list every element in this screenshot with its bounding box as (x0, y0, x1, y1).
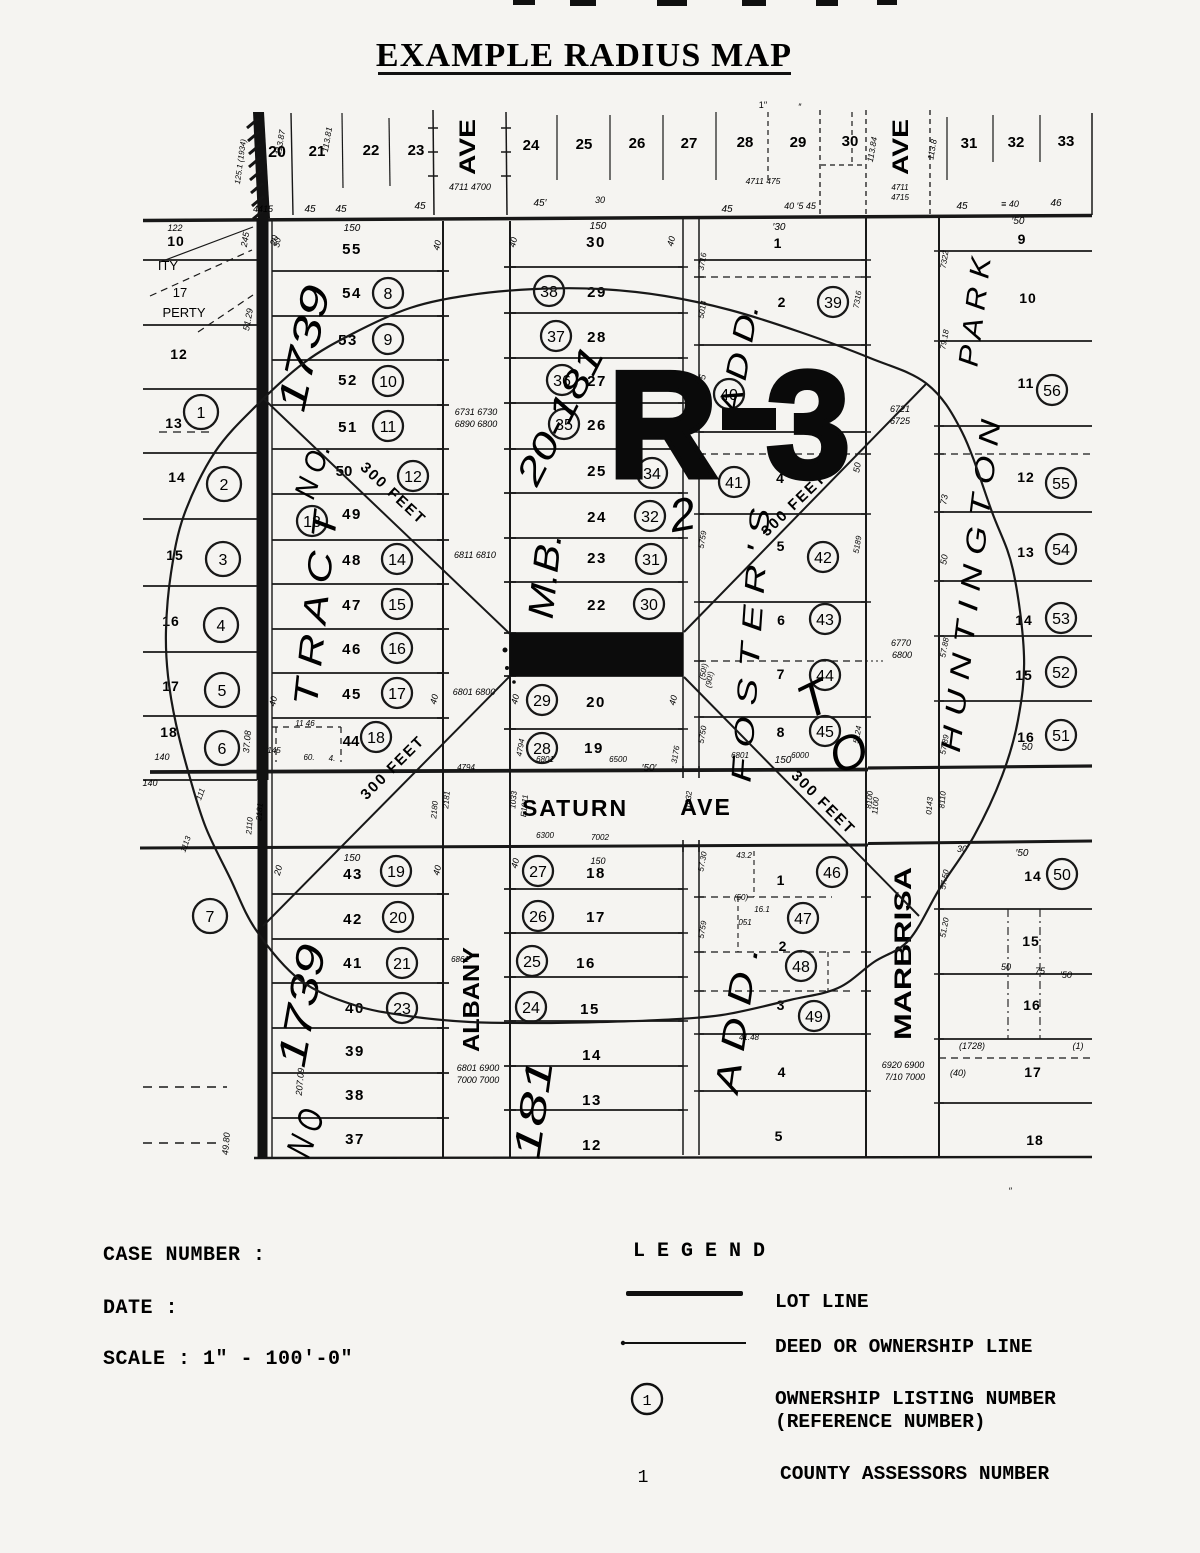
svg-text:50: 50 (336, 463, 353, 480)
svg-text:2: 2 (779, 938, 788, 954)
svg-text:4711 475: 4711 475 (746, 176, 781, 186)
svg-text:4711 4700: 4711 4700 (449, 182, 491, 192)
svg-text:45: 45 (414, 201, 426, 212)
svg-text:37.08: 37.08 (241, 730, 253, 753)
svg-text:150: 150 (590, 856, 605, 866)
svg-text:140: 140 (154, 752, 169, 762)
svg-text:29: 29 (587, 284, 607, 301)
svg-text:29: 29 (533, 693, 551, 710)
svg-text:7/10 7000: 7/10 7000 (885, 1072, 925, 1082)
svg-text:6770: 6770 (891, 638, 911, 648)
svg-text:21: 21 (393, 956, 411, 973)
svg-text:45: 45 (342, 686, 362, 703)
svg-text:EXAMPLE RADIUS MAP: EXAMPLE RADIUS MAP (376, 37, 792, 74)
svg-text:55: 55 (342, 241, 362, 258)
svg-text:41: 41 (343, 955, 363, 972)
svg-text:4415: 4415 (253, 204, 274, 214)
svg-text:45: 45 (721, 204, 733, 215)
svg-text:(1): (1) (1073, 1041, 1084, 1051)
svg-text:150: 150 (775, 755, 792, 766)
svg-text:6920 6900: 6920 6900 (882, 1060, 925, 1070)
svg-text:051: 051 (738, 918, 751, 927)
svg-text:13: 13 (165, 415, 183, 431)
svg-text:1: 1 (638, 1468, 649, 1488)
svg-text:11 46: 11 46 (295, 719, 315, 728)
svg-text:45: 45 (335, 204, 347, 215)
svg-text:6890 6800: 6890 6800 (455, 419, 498, 429)
svg-text:32: 32 (641, 509, 659, 526)
svg-text:12: 12 (1017, 469, 1035, 485)
svg-text:′′: ′′ (1008, 1186, 1012, 1196)
svg-text:14: 14 (168, 469, 186, 485)
svg-text:′30: ′30 (773, 222, 786, 233)
svg-text:50: 50 (1001, 962, 1011, 972)
svg-text:SATURN: SATURN (522, 795, 628, 821)
svg-text:1100: 1100 (870, 796, 881, 814)
svg-text:39: 39 (345, 1043, 365, 1060)
svg-text:6000: 6000 (791, 751, 809, 760)
svg-text:AVE: AVE (888, 119, 913, 175)
svg-text:150: 150 (590, 221, 607, 232)
svg-text:13: 13 (582, 1092, 602, 1109)
svg-text:16.1: 16.1 (754, 905, 770, 914)
svg-text:6731 6730: 6731 6730 (455, 407, 498, 417)
svg-text:12: 12 (582, 1137, 602, 1154)
svg-text:6801 6900: 6801 6900 (457, 1063, 500, 1073)
svg-text:26: 26 (629, 135, 646, 152)
svg-text:75: 75 (1035, 966, 1046, 976)
svg-text:25: 25 (523, 954, 541, 971)
svg-text:45: 45 (956, 201, 968, 212)
svg-text:9: 9 (384, 332, 393, 349)
svg-text:AVE: AVE (455, 119, 480, 175)
svg-text:28: 28 (737, 134, 754, 151)
svg-text:55: 55 (1052, 476, 1070, 493)
svg-text:39: 39 (824, 295, 842, 312)
svg-text:22: 22 (363, 142, 380, 159)
svg-text:6861: 6861 (451, 955, 469, 964)
svg-text:(40): (40) (950, 1068, 966, 1078)
svg-text:27: 27 (681, 135, 698, 152)
svg-text:46: 46 (342, 641, 362, 658)
svg-text:50: 50 (1053, 867, 1071, 884)
svg-text:5: 5 (777, 538, 786, 554)
svg-text:4711: 4711 (891, 183, 908, 192)
svg-text:26: 26 (529, 909, 547, 926)
svg-text:50: 50 (938, 554, 950, 566)
svg-text:37: 37 (547, 329, 565, 346)
svg-text:1: 1 (642, 1393, 651, 1410)
svg-text:44: 44 (343, 733, 360, 750)
svg-text:ITY: ITY (158, 258, 179, 273)
svg-text:17: 17 (388, 686, 406, 703)
svg-text:4: 4 (778, 1064, 787, 1080)
svg-text:42: 42 (343, 911, 363, 928)
svg-text:3: 3 (766, 340, 851, 510)
svg-text:22: 22 (587, 597, 607, 614)
svg-text:24: 24 (587, 509, 607, 526)
svg-text:52: 52 (1052, 665, 1070, 682)
svg-text:47: 47 (342, 597, 362, 614)
svg-text:SCALE : 1" - 100'-0": SCALE : 1" - 100'-0" (103, 1348, 353, 1371)
svg-text:6800: 6800 (892, 650, 912, 660)
svg-text:13: 13 (1017, 544, 1035, 560)
svg-text:48: 48 (342, 552, 362, 569)
svg-text:47: 47 (794, 911, 812, 928)
svg-text:3: 3 (777, 997, 786, 1013)
svg-text:6721: 6721 (890, 404, 910, 414)
svg-text:150: 150 (344, 853, 361, 864)
svg-text:33: 33 (1058, 133, 1075, 150)
svg-text:17: 17 (173, 285, 187, 300)
svg-text:30: 30 (595, 195, 605, 205)
svg-text:1: 1 (197, 405, 206, 422)
svg-text:L E G E N D: L E G E N D (633, 1240, 765, 1263)
svg-text:3: 3 (219, 552, 228, 569)
svg-text:′50: ′50 (1016, 848, 1029, 859)
svg-text:38: 38 (345, 1087, 365, 1104)
svg-text:2181: 2181 (441, 791, 452, 811)
svg-text:18: 18 (367, 730, 385, 747)
svg-text:7: 7 (206, 909, 215, 926)
svg-text:17: 17 (586, 909, 606, 926)
svg-text:41: 41 (725, 475, 743, 492)
svg-text:9: 9 (1018, 231, 1027, 247)
svg-text:31: 31 (961, 135, 978, 152)
svg-text:52: 52 (338, 372, 358, 389)
svg-text:15: 15 (388, 597, 406, 614)
svg-text:20: 20 (586, 694, 606, 711)
svg-text:10: 10 (167, 233, 185, 249)
svg-text:37: 37 (345, 1131, 365, 1148)
svg-text:50: 50 (851, 462, 863, 474)
svg-text:14: 14 (1015, 612, 1033, 628)
svg-text:DATE :: DATE : (103, 1297, 178, 1320)
svg-text:7000 7000: 7000 7000 (457, 1075, 500, 1085)
svg-text:11: 11 (1018, 375, 1035, 391)
svg-text:46: 46 (1050, 198, 1062, 209)
svg-text:23: 23 (408, 142, 425, 159)
svg-text:′50: ′50 (1060, 970, 1072, 980)
svg-text:18: 18 (586, 865, 606, 882)
svg-text:1: 1 (777, 872, 786, 888)
svg-text:(50): (50) (734, 893, 749, 902)
svg-text:2181: 2181 (254, 803, 265, 823)
svg-text:18: 18 (1026, 1132, 1044, 1148)
svg-text:17: 17 (1024, 1064, 1042, 1080)
svg-text:2: 2 (778, 294, 787, 310)
svg-text:25: 25 (587, 463, 607, 480)
svg-text:1′′: 1′′ (759, 100, 768, 110)
svg-text:LOT LINE: LOT LINE (775, 1291, 869, 1313)
svg-text:6: 6 (218, 741, 227, 758)
svg-text:2180: 2180 (429, 800, 440, 820)
svg-text:6801: 6801 (536, 755, 554, 764)
svg-text:15: 15 (580, 1001, 600, 1018)
svg-text:30: 30 (842, 133, 859, 150)
svg-text:56: 56 (1043, 383, 1061, 400)
svg-text:8: 8 (777, 724, 786, 740)
svg-text:16: 16 (162, 613, 180, 629)
svg-text:30: 30 (586, 234, 606, 251)
svg-text:4.: 4. (329, 754, 336, 763)
svg-text:45: 45 (304, 204, 316, 215)
svg-text:6300: 6300 (536, 831, 554, 840)
svg-text:(REFERENCE NUMBER): (REFERENCE NUMBER) (775, 1411, 986, 1433)
svg-text:19: 19 (584, 740, 604, 757)
svg-text:140: 140 (142, 778, 157, 788)
svg-text:43: 43 (816, 612, 834, 629)
svg-text:18: 18 (160, 724, 178, 740)
svg-text:30: 30 (640, 597, 658, 614)
svg-text:38: 38 (540, 284, 558, 301)
svg-text:5: 5 (775, 1128, 784, 1144)
svg-text:49.80: 49.80 (220, 1132, 232, 1155)
svg-text:29: 29 (790, 134, 807, 151)
svg-text:25: 25 (576, 136, 593, 153)
svg-text:16: 16 (576, 955, 596, 972)
svg-text:16: 16 (388, 641, 406, 658)
svg-text:40 ′5 45: 40 ′5 45 (784, 201, 817, 211)
svg-text:73: 73 (938, 494, 950, 506)
svg-text:12: 12 (404, 469, 422, 486)
svg-text:28: 28 (587, 329, 607, 346)
svg-text:20: 20 (389, 910, 407, 927)
svg-text:53: 53 (1052, 611, 1070, 628)
svg-text:122: 122 (167, 223, 182, 233)
svg-text:7002: 7002 (591, 833, 609, 842)
svg-text:50: 50 (1021, 742, 1033, 753)
svg-text:12: 12 (170, 346, 188, 362)
svg-text:15: 15 (1022, 933, 1040, 949)
svg-text:PERTY: PERTY (162, 305, 205, 320)
svg-text:43.2: 43.2 (736, 851, 752, 860)
svg-text:R: R (608, 340, 718, 510)
svg-text:4715: 4715 (891, 193, 909, 202)
svg-text:43: 43 (343, 866, 363, 883)
svg-text:14: 14 (1024, 868, 1042, 884)
svg-text:49: 49 (342, 506, 362, 523)
svg-text:8110: 8110 (937, 790, 948, 808)
svg-text:5: 5 (218, 683, 227, 700)
svg-text:11: 11 (380, 419, 397, 436)
svg-text:42: 42 (814, 550, 832, 567)
svg-text:54: 54 (1052, 542, 1070, 559)
svg-text:145: 145 (267, 746, 281, 755)
svg-text:8: 8 (384, 286, 393, 303)
svg-text:46: 46 (823, 865, 841, 882)
svg-text:23: 23 (587, 550, 607, 567)
svg-text:48: 48 (792, 959, 810, 976)
svg-text:10: 10 (1019, 290, 1037, 306)
svg-text:′50′: ′50′ (642, 763, 658, 774)
svg-text:14: 14 (582, 1047, 602, 1064)
svg-text:DEED OR OWNERSHIP LINE: DEED OR OWNERSHIP LINE (775, 1336, 1032, 1358)
svg-text:OWNERSHIP LISTING NUMBER: OWNERSHIP LISTING NUMBER (775, 1388, 1056, 1410)
svg-text:45′: 45′ (534, 198, 548, 209)
svg-text:150: 150 (344, 223, 361, 234)
svg-text:51: 51 (338, 419, 358, 436)
svg-text:60.: 60. (303, 753, 314, 762)
svg-text:(1728): (1728) (959, 1041, 985, 1051)
svg-text:6801 6800: 6801 6800 (453, 687, 496, 697)
svg-text:14: 14 (388, 552, 406, 569)
svg-text:26: 26 (587, 417, 607, 434)
svg-text:1: 1 (774, 235, 783, 251)
svg-text:6500: 6500 (609, 755, 627, 764)
svg-text:7: 7 (777, 666, 786, 682)
svg-text:10: 10 (379, 374, 397, 391)
svg-text:1032: 1032 (683, 790, 694, 809)
svg-text:COUNTY ASSESSORS NUMBER: COUNTY ASSESSORS NUMBER (780, 1463, 1049, 1485)
svg-text:4: 4 (217, 618, 226, 635)
svg-text:49: 49 (805, 1009, 823, 1026)
svg-text:19: 19 (387, 864, 405, 881)
svg-text:CASE NUMBER :: CASE NUMBER : (103, 1244, 266, 1267)
svg-text:24: 24 (522, 1000, 540, 1017)
svg-text:24: 24 (523, 137, 540, 154)
svg-text:27: 27 (529, 864, 547, 881)
svg-text:MARBRISA: MARBRISA (890, 867, 917, 1040)
svg-text:1033: 1033 (508, 790, 519, 809)
svg-text:54: 54 (342, 285, 362, 302)
svg-text:6: 6 (777, 612, 785, 628)
svg-text:′50: ′50 (1012, 216, 1025, 227)
svg-text:2: 2 (220, 477, 229, 494)
svg-text:32: 32 (1008, 134, 1025, 151)
svg-text:31: 31 (642, 552, 660, 569)
svg-text:0143: 0143 (924, 796, 935, 815)
svg-text:6811 6810: 6811 6810 (454, 550, 496, 560)
svg-text:2110: 2110 (244, 816, 255, 835)
svg-text:20: 20 (268, 144, 286, 161)
svg-text:4794: 4794 (457, 763, 475, 772)
svg-text:16: 16 (1023, 997, 1041, 1013)
svg-text:51: 51 (1052, 728, 1070, 745)
svg-text:≡ 40: ≡ 40 (1001, 199, 1019, 209)
svg-text:6801: 6801 (731, 751, 749, 760)
